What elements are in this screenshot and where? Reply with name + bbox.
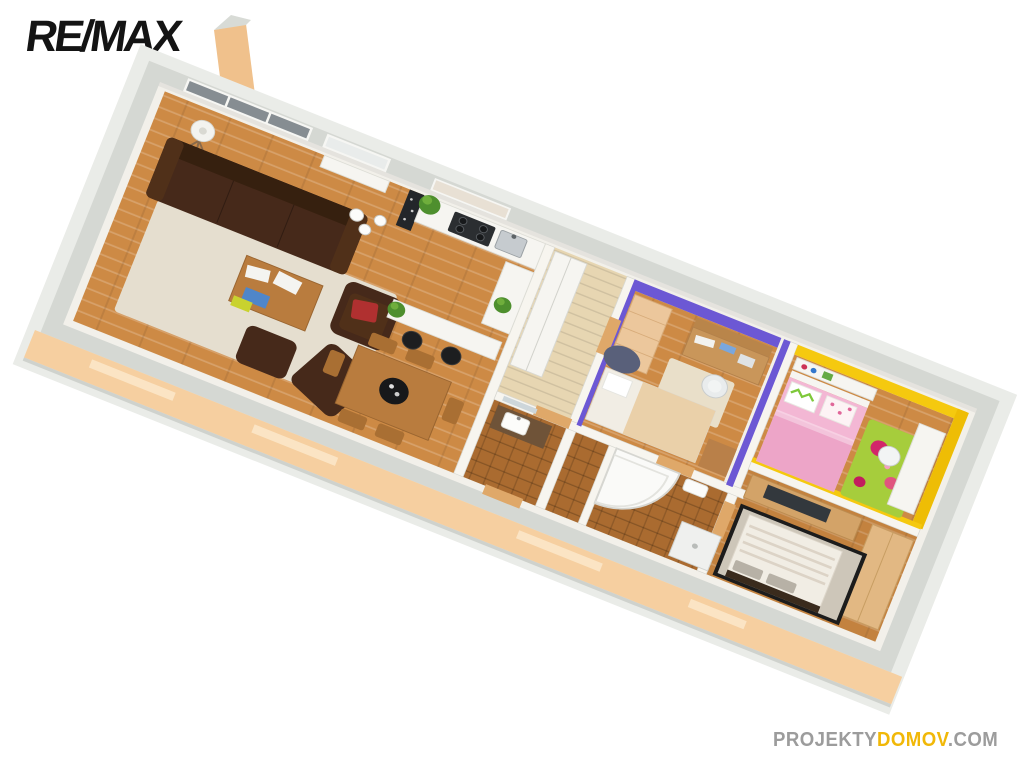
projektydomov-watermark: PROJEKTYDOMOV.COM (773, 729, 998, 752)
floorplan-scene (0, 0, 1024, 768)
building (13, 44, 1017, 714)
watermark-com: .COM (948, 729, 998, 751)
watermark-projekty: PROJEKTY (773, 729, 877, 751)
watermark-domov: DOMOV (877, 729, 948, 751)
